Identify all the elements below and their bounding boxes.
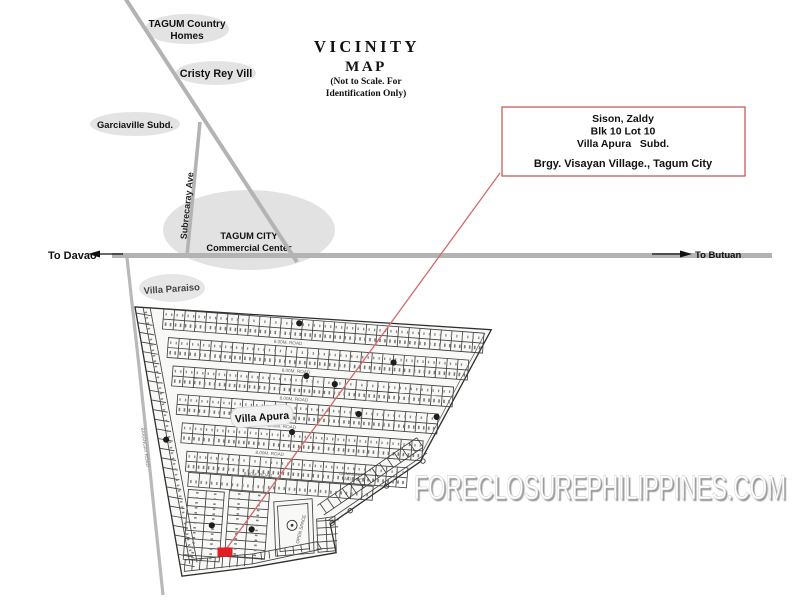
svg-text:To Davao: To Davao (48, 250, 97, 262)
svg-text:Brgy. Visayan Village., Tagum: Brgy. Visayan Village., Tagum City (534, 158, 713, 170)
svg-text:(Not to Scale. For: (Not to Scale. For (330, 76, 402, 87)
svg-text:Commercial Center: Commercial Center (206, 243, 292, 253)
svg-text:VICINITY: VICINITY (314, 37, 420, 56)
svg-text:Blk 10 Lot 10: Blk 10 Lot 10 (591, 126, 656, 138)
svg-text:To Butuan: To Butuan (695, 250, 741, 261)
svg-text:TAGUM Country: TAGUM Country (148, 19, 225, 30)
svg-text:Cristy Rey Vill: Cristy Rey Vill (180, 68, 252, 80)
svg-text:Identification Only): Identification Only) (326, 88, 407, 99)
svg-text:Homes: Homes (170, 31, 204, 42)
svg-text:Sison, Zaldy: Sison, Zaldy (592, 113, 654, 125)
svg-text:Garciaville Subd.: Garciaville Subd. (97, 119, 173, 130)
svg-text:FORECLOSUREPHILIPPINES.COM: FORECLOSUREPHILIPPINES.COM (414, 469, 786, 507)
svg-text:Villa Apura Subd.: Villa Apura Subd. (577, 138, 669, 150)
svg-text:MAP: MAP (345, 59, 387, 75)
svg-text:TAGUM CITY: TAGUM CITY (220, 231, 278, 241)
